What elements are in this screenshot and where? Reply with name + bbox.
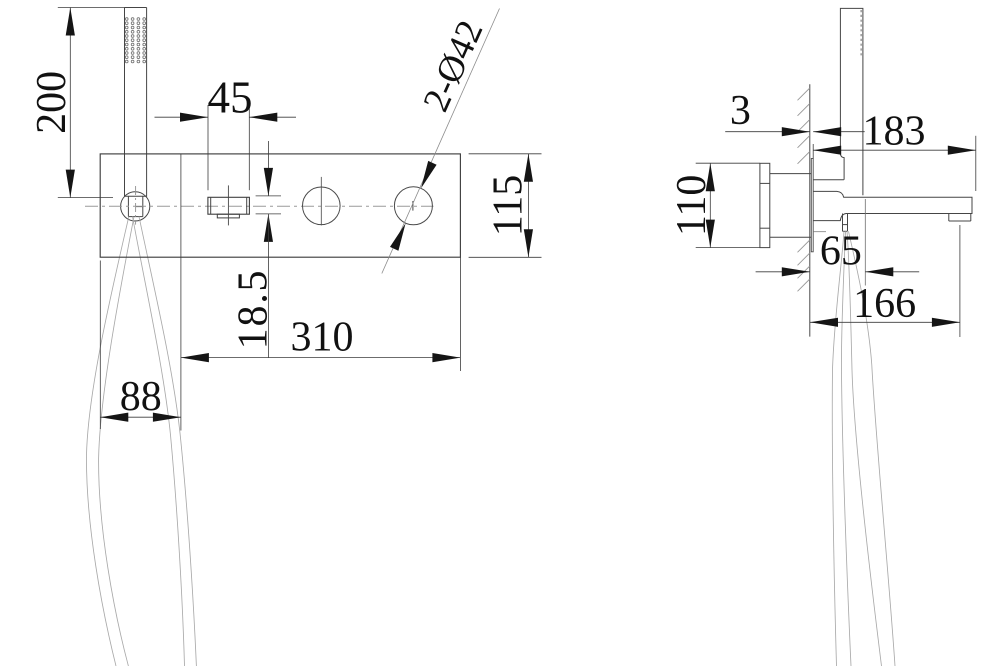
svg-text:65: 65 <box>820 229 862 275</box>
svg-text:45: 45 <box>208 72 253 122</box>
svg-text:3: 3 <box>730 88 751 134</box>
svg-text:18.5: 18.5 <box>231 269 277 350</box>
svg-text:200: 200 <box>29 71 75 134</box>
svg-text:166: 166 <box>853 281 916 327</box>
svg-text:310: 310 <box>291 315 354 361</box>
svg-text:115: 115 <box>486 175 532 236</box>
svg-text:110: 110 <box>669 175 715 236</box>
svg-text:183: 183 <box>863 108 926 154</box>
svg-text:88: 88 <box>120 374 162 420</box>
